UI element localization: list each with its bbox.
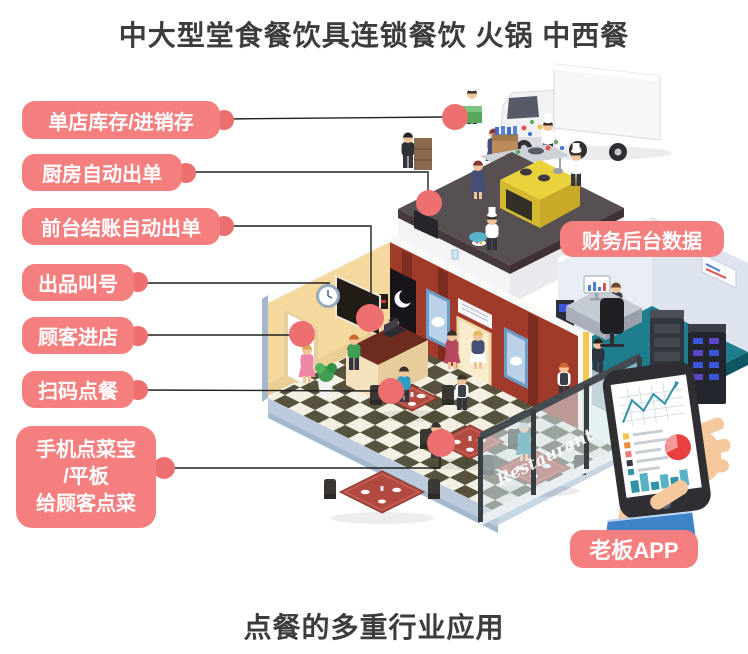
callout-kitchen-auto-order: 厨房自动出单 [22,154,182,191]
connector-kitchen [186,172,428,193]
handheld-line-3: 给顾客点菜 [36,491,136,518]
anchor-dot-cashier [356,304,384,332]
infographic-canvas: 中大型堂食餐饮具连锁餐饮 火锅 中西餐 点餐的多重行业应用 [0,0,748,654]
connector-handheld [165,453,440,468]
anchor-dot-entry [289,321,315,347]
callout-order-calling: 出品叫号 [22,264,134,301]
callout-inventory: 单店库存/进销存 [22,101,220,139]
callout-scan-ordering: 扫码点餐 [22,371,134,408]
connector-scan [138,390,379,391]
connector-inventory [224,117,443,119]
handheld-line-2: /平板 [63,464,109,491]
connector-cashier [224,226,371,306]
callout-finance-backend: 财务后台数据 [560,221,724,257]
anchor-dot-inventory [442,104,468,130]
callout-customer-entry: 顾客进店 [22,317,134,354]
handheld-line-1: 手机点菜宝 [36,437,136,464]
callout-boss-app: 老板APP [570,530,698,568]
anchor-dot-handheld [427,429,455,457]
callout-cashier-auto-order: 前台结账自动出单 [22,208,220,245]
anchor-dot-kitchen [416,190,442,216]
callout-handheld-ordering: 手机点菜宝 /平板 给顾客点菜 [16,426,156,528]
anchor-dot-scan [378,378,404,404]
label-dot-handheld [153,457,175,479]
